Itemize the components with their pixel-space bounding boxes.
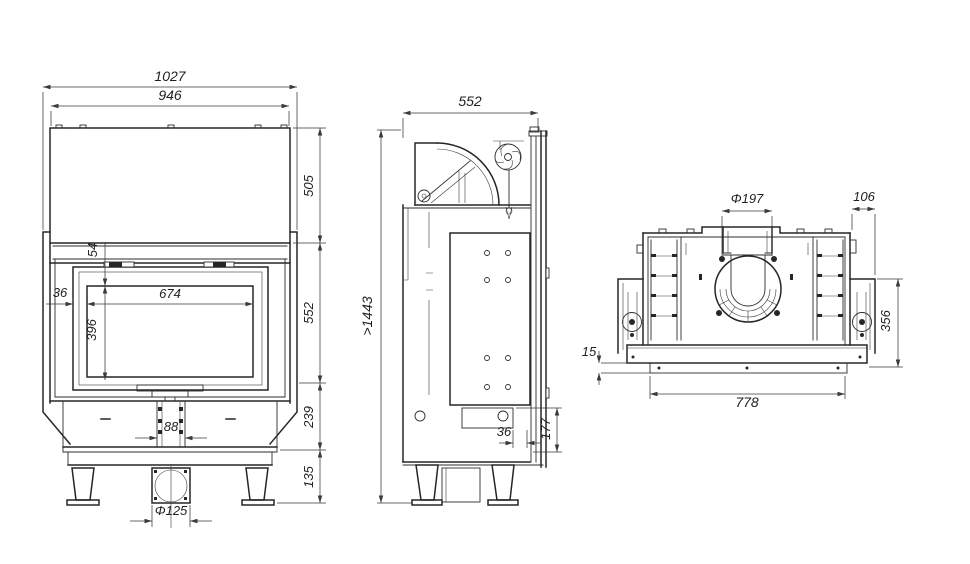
top-back-edge (643, 227, 850, 233)
dim-door-top-to-glass: 54 (85, 243, 100, 257)
dim-top-depth: 356 (878, 309, 893, 331)
dim-side-bracket-offset: 106 (853, 189, 875, 204)
drawing-canvas: 1027 946 674 36 54 396 88 Φ125 505 552 2… (0, 0, 970, 564)
dim-air-inlet-width: 88 (164, 419, 179, 434)
dim-front-bar-gap: 15 (582, 344, 597, 359)
dim-base-width: 778 (735, 394, 759, 410)
technical-drawing-page: 1027 946 674 36 54 396 88 Φ125 505 552 2… (0, 0, 970, 564)
side-wings (43, 232, 297, 444)
dim-glass-height: 396 (84, 318, 99, 340)
dim-rear-duct-height: 177 (538, 417, 553, 439)
dim-firebox-height: 552 (301, 301, 316, 323)
dim-base-height: 239 (301, 406, 316, 429)
top-view: Φ197 106 15 778 356 (582, 189, 903, 410)
dim-glass-width: 674 (159, 286, 181, 301)
dim-hood-height: 505 (301, 174, 316, 196)
counterweight-pulley-wheel (495, 144, 521, 170)
dim-air-inlet-diameter: Φ125 (155, 503, 188, 518)
dim-overall-width: 1027 (154, 68, 186, 84)
rear-heat-shield (541, 131, 546, 467)
flue-neck (723, 227, 772, 253)
dim-rear-gap: 36 (497, 424, 512, 439)
dim-casing-width: 946 (158, 87, 182, 103)
front-view: 1027 946 674 36 54 396 88 Φ125 505 552 2… (43, 68, 326, 528)
door-guide-arc (437, 143, 499, 205)
dim-min-installation-height: >1443 (359, 296, 375, 336)
dim-depth: 552 (458, 93, 482, 109)
hood-outline (50, 128, 290, 243)
dim-flue-diameter: Φ197 (731, 191, 764, 206)
left-fin-panel (651, 237, 681, 340)
side-view: 552 >1443 36 177 (359, 93, 562, 505)
convection-panel (450, 233, 530, 405)
leg-right (246, 468, 268, 500)
top-wing-right (850, 279, 875, 353)
right-fin-panel (813, 237, 843, 340)
leg-left (72, 468, 94, 500)
side-leg-rear (492, 465, 514, 500)
dim-legs-height: 135 (301, 465, 316, 487)
dim-frame-margin: 36 (53, 285, 68, 300)
side-leg-front (416, 465, 438, 500)
